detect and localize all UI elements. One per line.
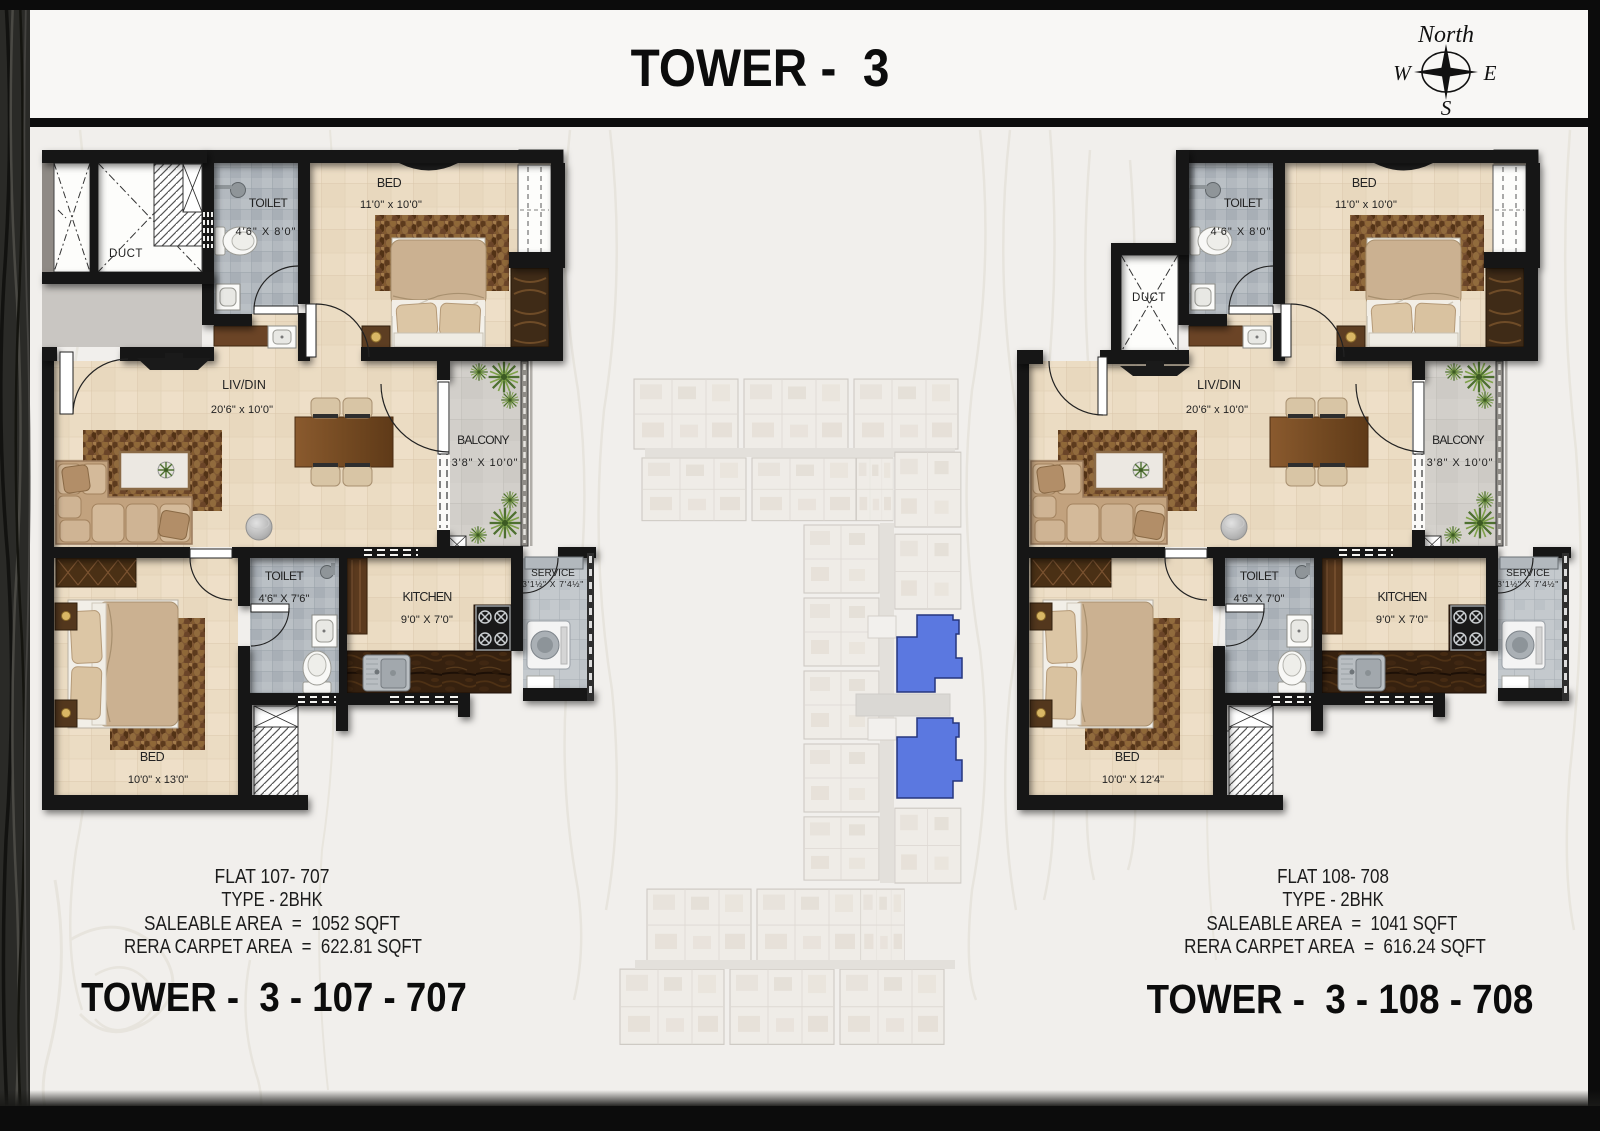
svg-text:FLAT 108- 708: FLAT 108- 708	[1277, 865, 1389, 888]
svg-text:11'0" x 10'0": 11'0" x 10'0"	[360, 199, 422, 211]
svg-text:BALCONY: BALCONY	[457, 433, 510, 447]
svg-text:FLAT 107- 707: FLAT 107- 707	[215, 865, 330, 887]
svg-text:10'0" X 12'4": 10'0" X 12'4"	[1102, 774, 1164, 786]
svg-text:BED: BED	[140, 750, 165, 764]
svg-text:RERA CARPET AREA = 616.24 SQ: RERA CARPET AREA = 616.24 SQFT	[1184, 935, 1486, 958]
svg-text:4'6" X 7'6": 4'6" X 7'6"	[258, 593, 309, 605]
svg-text:W: W	[1393, 61, 1413, 85]
svg-text:4'6" X 7'0": 4'6" X 7'0"	[1233, 593, 1284, 605]
svg-text:TOILET: TOILET	[249, 196, 288, 210]
svg-text:10'0" x 13'0": 10'0" x 13'0"	[128, 774, 188, 786]
svg-text:S: S	[1441, 96, 1452, 120]
svg-text:SALEABLE AREA = 1052 SQFT: SALEABLE AREA = 1052 SQFT	[144, 912, 400, 935]
svg-text:3'1½" X 7'4½": 3'1½" X 7'4½"	[522, 579, 584, 589]
svg-text:4'6" X 8'0": 4'6" X 8'0"	[236, 226, 297, 238]
svg-text:BED: BED	[377, 176, 402, 190]
svg-text:LIV/DIN: LIV/DIN	[222, 378, 266, 392]
svg-text:TOWER - 3 - 108 - 708: TOWER - 3 - 108 - 708	[1147, 977, 1534, 1022]
svg-text:E: E	[1483, 61, 1497, 85]
svg-text:TOWER - 3 - 107 - 707: TOWER - 3 - 107 - 707	[81, 975, 467, 1020]
svg-text:3'8" X 10'0": 3'8" X 10'0"	[452, 457, 519, 469]
svg-text:SERVICE: SERVICE	[531, 568, 575, 579]
svg-text:SALEABLE AREA = 1041 SQFT: SALEABLE AREA = 1041 SQFT	[1207, 912, 1458, 935]
svg-text:RERA CARPET AREA = 622.81 SQ: RERA CARPET AREA = 622.81 SQFT	[124, 935, 422, 958]
svg-text:DUCT: DUCT	[1132, 292, 1166, 304]
svg-text:KITCHEN: KITCHEN	[403, 590, 453, 604]
svg-text:9'0" X 7'0": 9'0" X 7'0"	[401, 614, 453, 626]
svg-text:TYPE - 2BHK: TYPE - 2BHK	[221, 888, 323, 911]
svg-text:DUCT: DUCT	[109, 248, 143, 260]
svg-text:20'6" x 10'0": 20'6" x 10'0"	[211, 404, 273, 416]
svg-text:North: North	[1417, 22, 1474, 48]
svg-text:TOWER - 3: TOWER - 3	[631, 38, 890, 98]
svg-text:TOILET: TOILET	[265, 569, 304, 583]
svg-text:TYPE - 2BHK: TYPE - 2BHK	[1282, 888, 1384, 911]
